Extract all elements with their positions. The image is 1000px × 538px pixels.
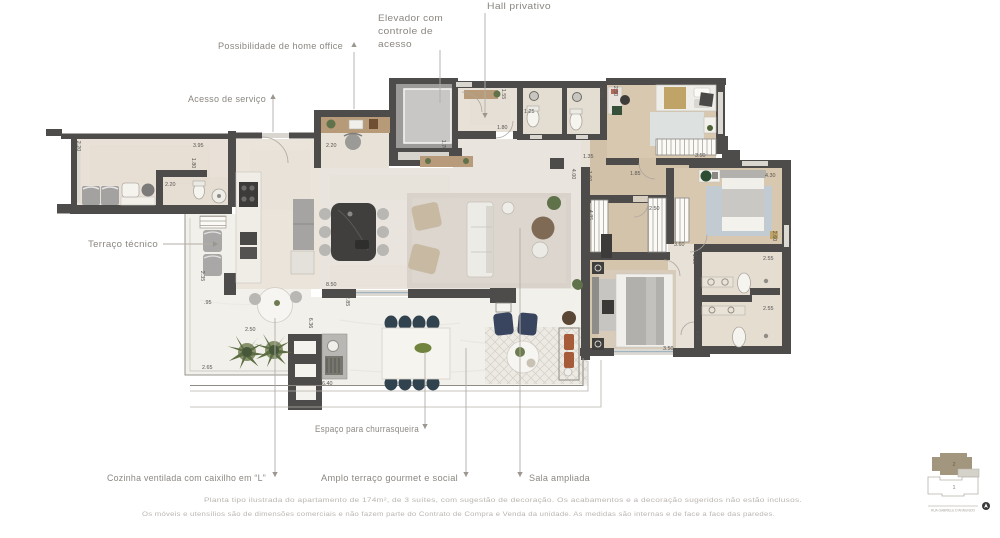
svg-text:Sala ampliada: Sala ampliada <box>529 473 590 484</box>
svg-text:RUA GABRIELE D’ANNUNZIO: RUA GABRIELE D’ANNUNZIO <box>931 509 975 513</box>
svg-text:controle de: controle de <box>378 26 433 37</box>
svg-text:Amplo terraço gourmet e social: Amplo terraço gourmet e social <box>321 473 458 484</box>
svg-text:2.60: 2.60 <box>771 231 777 242</box>
svg-text:Espaço para churrasqueira: Espaço para churrasqueira <box>315 424 419 435</box>
svg-text:1.35: 1.35 <box>583 154 594 160</box>
svg-text:1.25: 1.25 <box>524 109 535 115</box>
svg-text:3.60: 3.60 <box>674 242 685 248</box>
svg-text:2.85: 2.85 <box>344 296 350 307</box>
svg-text:3.95: 3.95 <box>193 143 204 149</box>
svg-text:1.80: 1.80 <box>497 125 508 131</box>
svg-text:8.50: 8.50 <box>326 282 337 288</box>
svg-text:1.60: 1.60 <box>694 331 700 342</box>
svg-text:1.80: 1.80 <box>190 158 196 169</box>
svg-text:1: 1 <box>952 485 955 491</box>
svg-text:3.50: 3.50 <box>663 346 674 352</box>
svg-text:1.55: 1.55 <box>500 89 506 100</box>
svg-text:3.50: 3.50 <box>695 153 706 159</box>
svg-text:1.60: 1.60 <box>586 171 592 182</box>
svg-text:4.30: 4.30 <box>765 173 776 179</box>
svg-text:2.50: 2.50 <box>245 327 256 333</box>
svg-text:1.35: 1.35 <box>691 254 697 265</box>
svg-text:2.20: 2.20 <box>326 143 337 149</box>
svg-text:Planta tipo ilustrada do apart: Planta tipo ilustrada do apartamento de … <box>204 497 802 504</box>
svg-text:2.50: 2.50 <box>612 86 618 97</box>
svg-text:Terraço técnico: Terraço técnico <box>88 239 158 250</box>
svg-text:6.40: 6.40 <box>322 381 333 387</box>
svg-text:2.20: 2.20 <box>75 141 81 152</box>
svg-text:Hall privativo: Hall privativo <box>487 1 551 12</box>
svg-text:2.55: 2.55 <box>763 306 774 312</box>
svg-text:2.50: 2.50 <box>649 206 660 212</box>
svg-text:Os móveis e utensílios são de: Os móveis e utensílios são de dimensões … <box>142 511 775 518</box>
svg-text:2.45: 2.45 <box>598 87 604 98</box>
svg-text:2.55: 2.55 <box>763 256 774 262</box>
svg-text:Acesso de serviço: Acesso de serviço <box>188 94 266 105</box>
svg-text:acesso: acesso <box>378 39 412 50</box>
svg-text:6.36: 6.36 <box>307 318 313 329</box>
svg-text:.95: .95 <box>204 300 212 306</box>
svg-text:2.35: 2.35 <box>199 271 205 282</box>
svg-text:4.00: 4.00 <box>570 169 576 180</box>
svg-text:2.65: 2.65 <box>202 365 213 371</box>
svg-text:1.85: 1.85 <box>630 171 641 177</box>
svg-text:4.85: 4.85 <box>587 210 593 221</box>
svg-text:Possibilidade de home office: Possibilidade de home office <box>218 41 343 52</box>
svg-text:1.70: 1.70 <box>440 140 446 151</box>
svg-text:Cozinha ventilada com caixilho: Cozinha ventilada com caixilho em “L” <box>107 473 266 484</box>
svg-text:2.20: 2.20 <box>165 182 176 188</box>
svg-text:2: 2 <box>952 462 955 468</box>
svg-text:Elevador com: Elevador com <box>378 13 443 24</box>
